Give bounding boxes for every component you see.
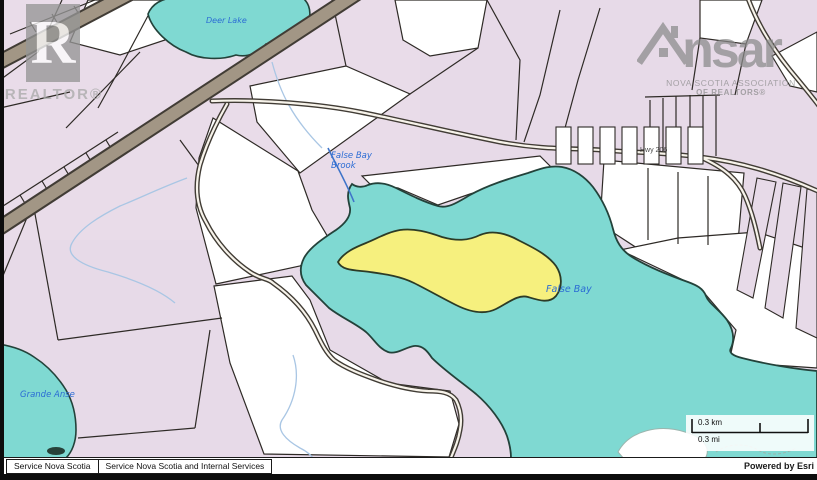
brook-label-line2: Brook bbox=[331, 162, 372, 172]
house-roof-icon bbox=[637, 20, 689, 66]
bottom-border bbox=[0, 474, 817, 480]
realtor-logo-letter: R bbox=[31, 12, 76, 74]
nsar-caption-line1: NOVA SCOTIA ASSOCIATION bbox=[643, 78, 817, 88]
realtor-watermark: R REALTOR® bbox=[0, 4, 110, 103]
lake-label: Deer Lake bbox=[206, 16, 247, 25]
brook-label: False Bay Brook bbox=[331, 152, 372, 172]
powered-by-esri: Powered by Esri bbox=[744, 461, 814, 471]
small-parcels-row bbox=[556, 127, 703, 164]
attribution-secondary: Service Nova Scotia and Internal Service… bbox=[98, 460, 272, 473]
map-canvas[interactable]: Deer Lake False Bay Brook False Bay Gran… bbox=[0, 0, 817, 480]
bay-label: False Bay bbox=[546, 285, 592, 296]
road-label: Hwy 206 bbox=[640, 147, 667, 154]
footer-attribution: Service Nova Scotia Service Nova Scotia … bbox=[6, 459, 272, 474]
attribution-primary: Service Nova Scotia bbox=[7, 460, 98, 473]
nsar-text-right: ar bbox=[737, 28, 780, 72]
realtor-caption: REALTOR® bbox=[0, 86, 108, 103]
footer-bar: Service Nova Scotia Service Nova Scotia … bbox=[0, 457, 817, 475]
nsar-text-left: ns bbox=[682, 28, 737, 72]
cove-label: Grande Anse bbox=[20, 391, 75, 401]
scale-bar: 0.3 km 0.3 mi bbox=[686, 415, 814, 451]
nsar-logo: ns ar bbox=[643, 20, 817, 72]
scale-mi-label: 0.3 mi bbox=[698, 435, 720, 444]
islet bbox=[47, 447, 65, 455]
realtor-logo-icon: R bbox=[26, 4, 80, 82]
scale-km-label: 0.3 km bbox=[698, 418, 722, 427]
nsar-caption-line2: OF REALTORS® bbox=[643, 88, 817, 97]
left-border bbox=[0, 0, 4, 480]
nsar-watermark: ns ar NOVA SCOTIA ASSOCIATION OF REALTOR… bbox=[643, 20, 817, 97]
